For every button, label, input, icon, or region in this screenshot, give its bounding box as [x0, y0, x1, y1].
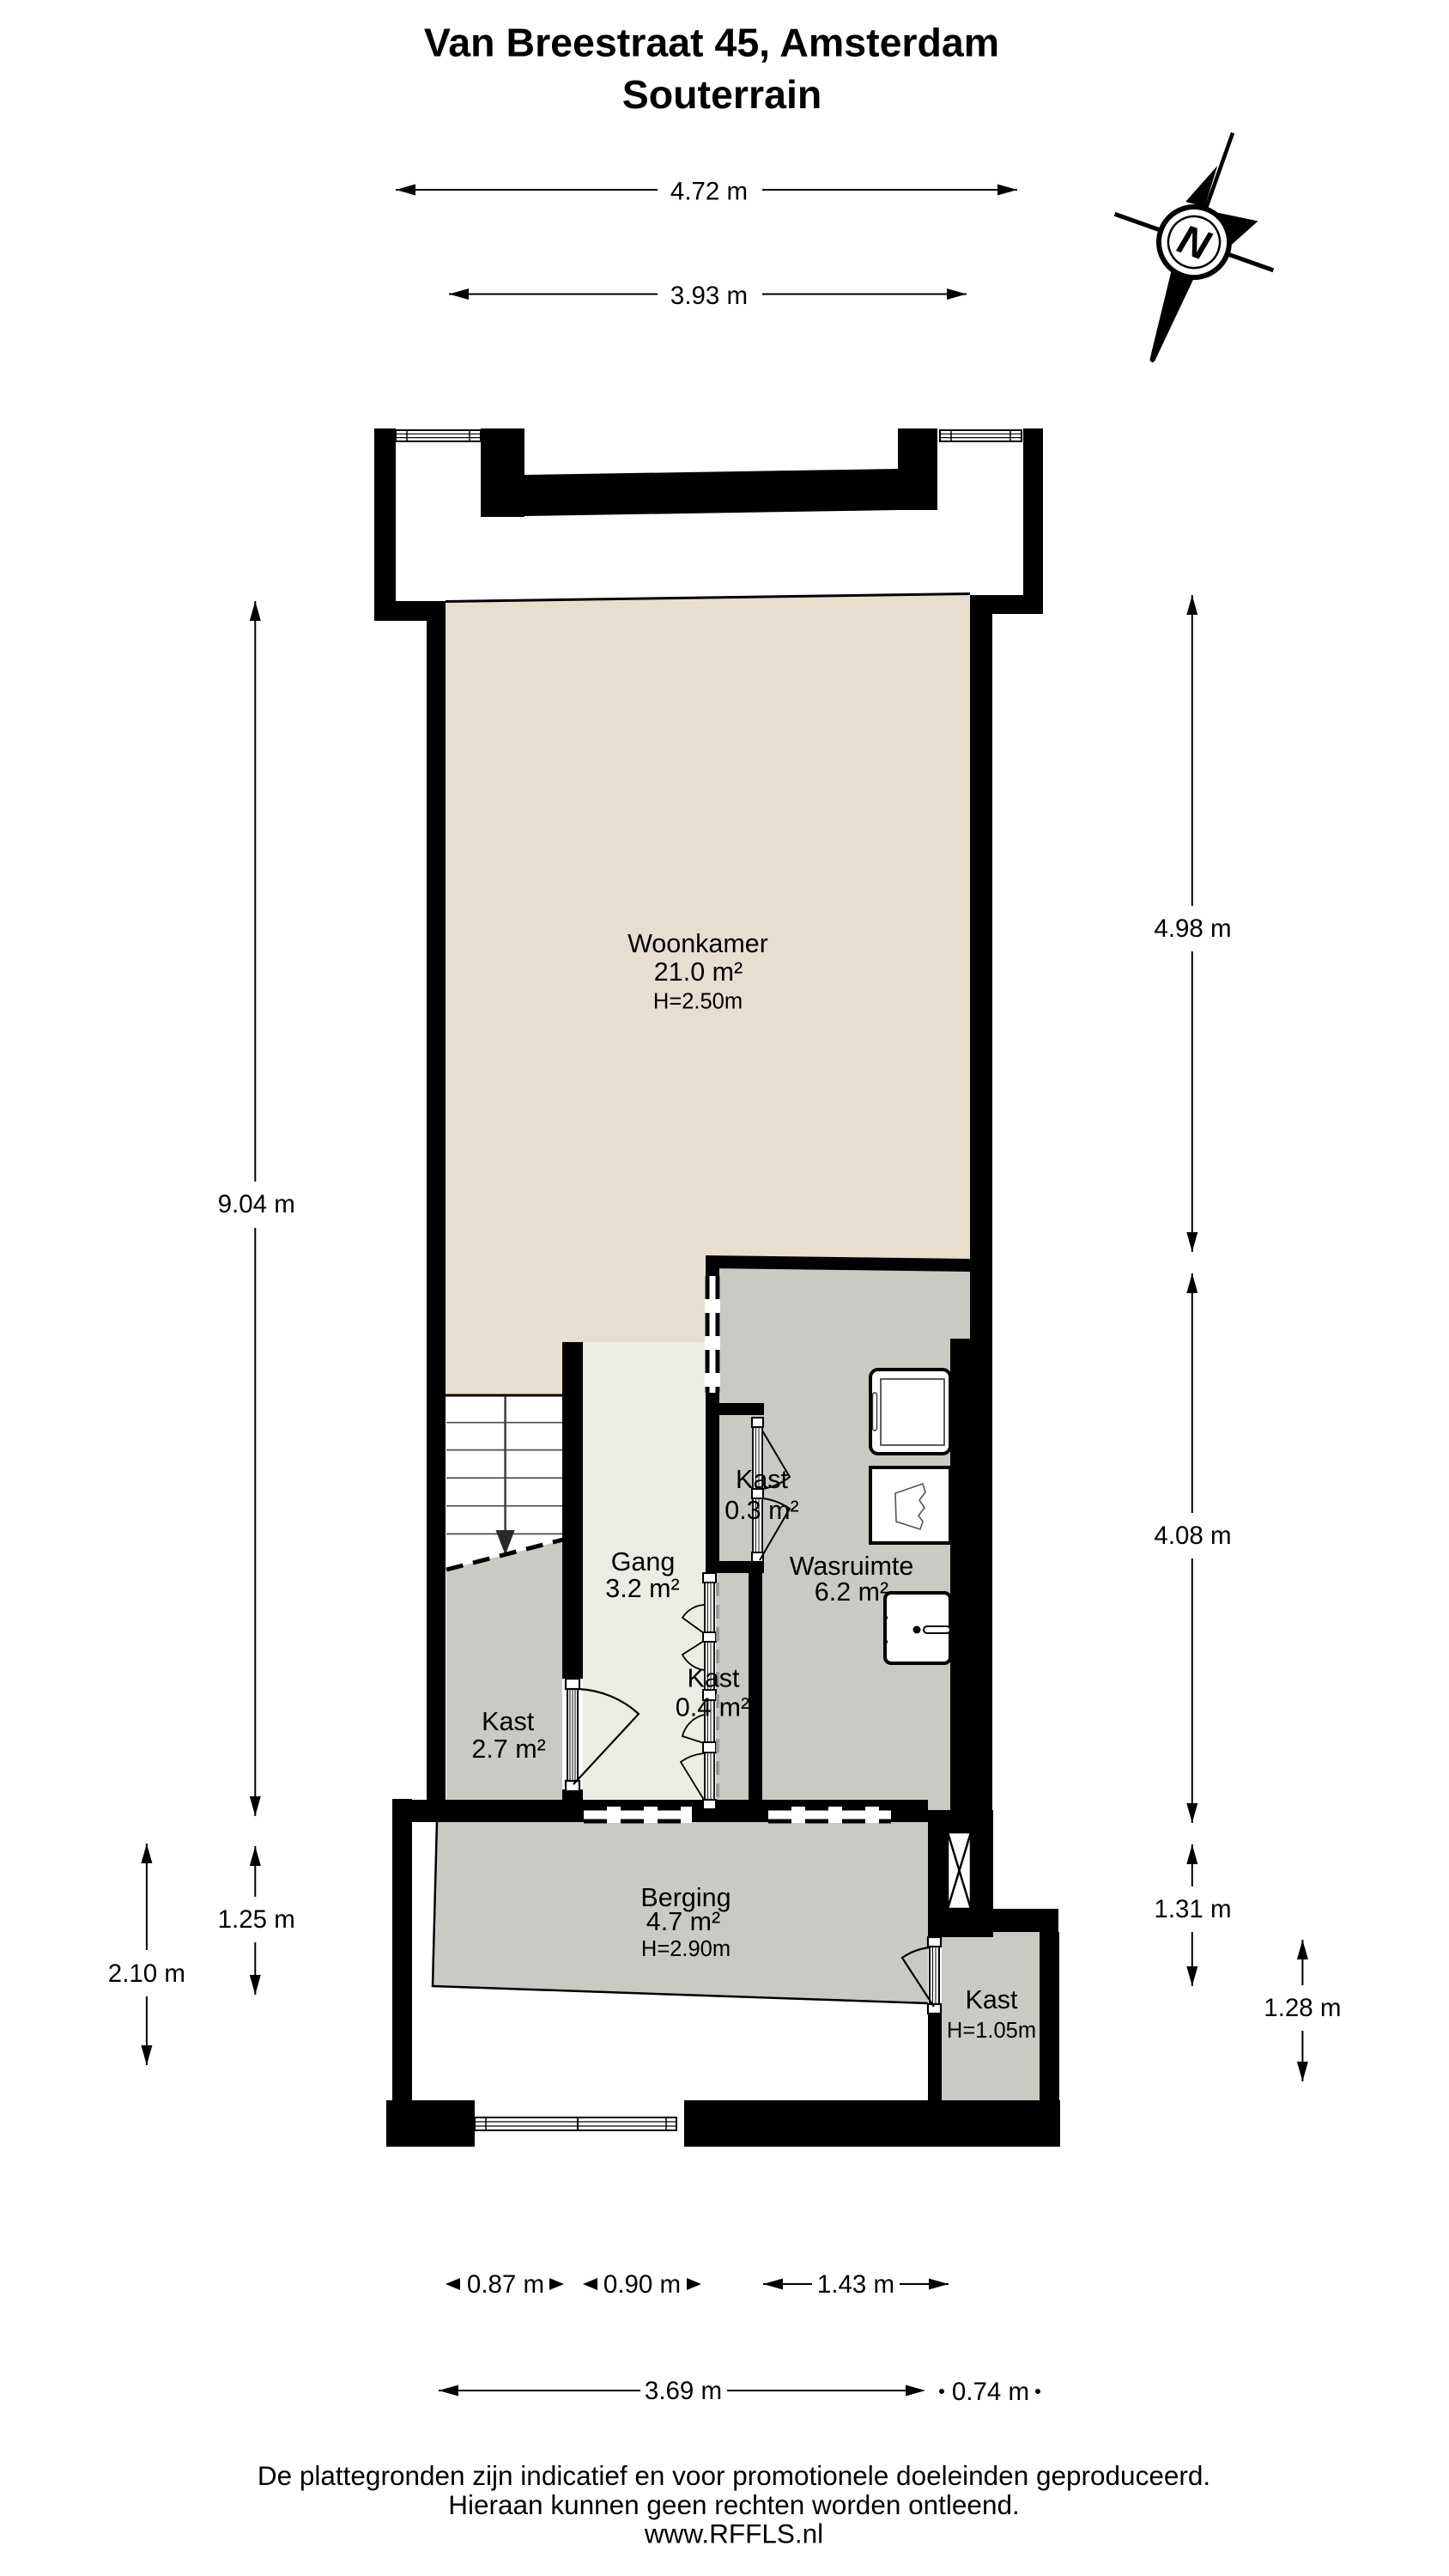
svg-text:1.28 m: 1.28 m [1264, 1994, 1341, 2022]
svg-text:4.08 m: 4.08 m [1154, 1522, 1231, 1550]
svg-text:Kast: Kast [687, 1664, 740, 1693]
svg-text:Hieraan kunnen geen rechten wo: Hieraan kunnen geen rechten worden ontle… [448, 2489, 1019, 2520]
svg-text:Kast: Kast [965, 1985, 1018, 2014]
svg-text:Van Breestraat 45, Amsterdam: Van Breestraat 45, Amsterdam [424, 21, 999, 65]
svg-text:6.2 m²: 6.2 m² [815, 1577, 888, 1607]
svg-text:De plattegronden zijn indicati: De plattegronden zijn indicatief en voor… [258, 2460, 1210, 2491]
svg-text:www.RFFLS.nl: www.RFFLS.nl [644, 2518, 823, 2549]
svg-text:Kast: Kast [736, 1465, 789, 1494]
svg-text:H=1.05m: H=1.05m [947, 2019, 1036, 2043]
svg-text:0.87 m: 0.87 m [467, 2270, 544, 2299]
svg-text:21.0 m²: 21.0 m² [654, 957, 743, 987]
svg-text:Wasruimte: Wasruimte [790, 1552, 914, 1581]
svg-text:4.98 m: 4.98 m [1154, 914, 1231, 943]
svg-text:3.69 m: 3.69 m [645, 2377, 722, 2405]
svg-text:2.10 m: 2.10 m [108, 1959, 185, 1988]
svg-text:1.25 m: 1.25 m [218, 1905, 295, 1934]
svg-text:H=2.90m: H=2.90m [641, 1937, 731, 1961]
svg-text:3.2 m²: 3.2 m² [605, 1574, 679, 1603]
svg-text:1.31 m: 1.31 m [1154, 1895, 1231, 1923]
svg-text:Souterrain: Souterrain [622, 72, 822, 117]
svg-text:4.72 m: 4.72 m [670, 178, 748, 206]
svg-text:0.3 m²: 0.3 m² [724, 1496, 798, 1525]
svg-text:2.7 m²: 2.7 m² [471, 1735, 545, 1764]
svg-text:3.93 m: 3.93 m [670, 282, 748, 310]
svg-text:0.90 m: 0.90 m [603, 2270, 681, 2299]
svg-text:0.74 m: 0.74 m [952, 2378, 1029, 2406]
svg-text:Woonkamer: Woonkamer [627, 929, 768, 958]
svg-text:1.43 m: 1.43 m [817, 2270, 894, 2299]
svg-text:Gang: Gang [611, 1547, 676, 1577]
svg-text:0.4 m²: 0.4 m² [676, 1693, 749, 1722]
svg-text:Kast: Kast [482, 1707, 535, 1736]
svg-text:9.04 m: 9.04 m [218, 1190, 295, 1218]
svg-text:4.7 m²: 4.7 m² [646, 1907, 720, 1936]
svg-text:H=2.50m: H=2.50m [653, 990, 743, 1014]
